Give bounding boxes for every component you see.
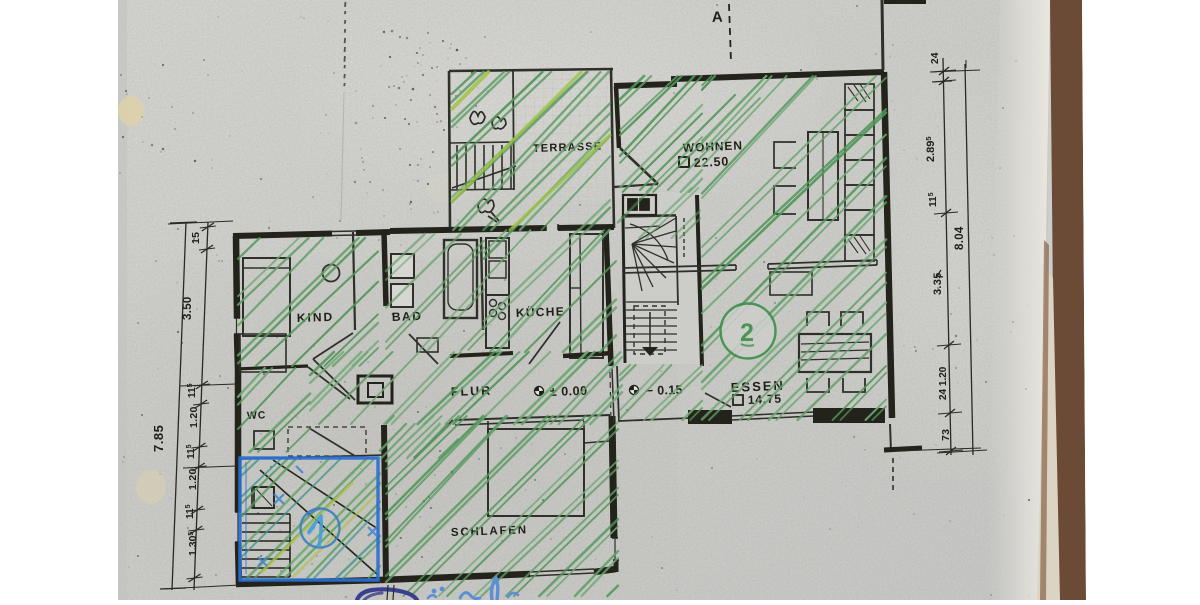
svg-text:2: 2	[740, 319, 754, 347]
svg-text:1.20: 1.20	[188, 406, 200, 428]
svg-text:1.20: 1.20	[187, 468, 199, 490]
svg-text:A: A	[712, 9, 724, 26]
svg-text:7.85: 7.85	[151, 425, 166, 452]
svg-text:24 1.20: 24 1.20	[938, 366, 949, 400]
svg-text:3.50: 3.50	[182, 296, 194, 320]
svg-text:73: 73	[940, 429, 952, 441]
svg-text:8.04: 8.04	[954, 226, 966, 250]
svg-text:15: 15	[190, 232, 202, 244]
svg-text:24: 24	[930, 52, 941, 64]
